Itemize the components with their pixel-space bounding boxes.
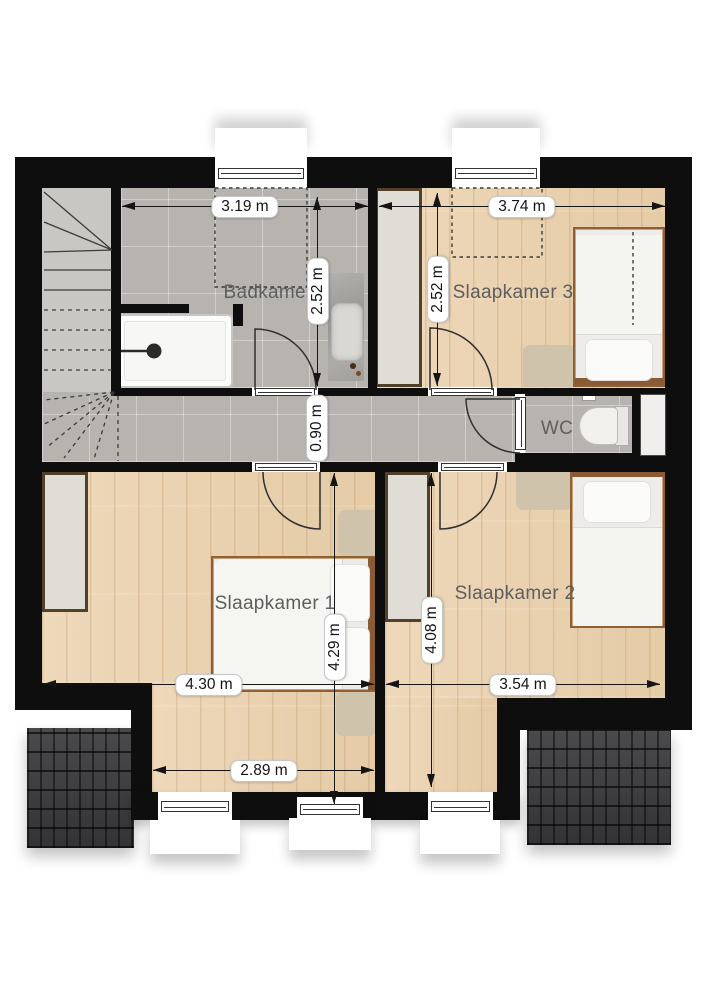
dimension-label: 3.19 m: [211, 196, 278, 218]
door-threshold: [515, 394, 525, 453]
door-threshold: [252, 462, 320, 472]
window: [428, 792, 493, 820]
dimension-label: 4.29 m: [324, 613, 346, 680]
cupboard: [640, 394, 666, 456]
door-threshold: [438, 462, 507, 472]
window-glazing: [431, 801, 490, 812]
stairs-floor: [42, 188, 115, 395]
window-sill: [289, 818, 371, 850]
wall-exterior-right-step-vertical: [497, 730, 520, 792]
arrowhead: [379, 202, 392, 210]
pillow: [583, 481, 651, 523]
roof-tiles: [527, 730, 671, 845]
arrowhead: [122, 202, 135, 210]
window-sill: [150, 820, 240, 854]
toilet-bowl: [579, 407, 618, 445]
wall-shower-top: [111, 304, 189, 313]
wall-exterior-left: [15, 157, 42, 698]
rug: [336, 692, 376, 736]
wall-exterior-left-step: [15, 683, 152, 710]
threshold-lines: [431, 388, 494, 396]
window-glazing: [455, 168, 537, 179]
wardrobe: [42, 472, 88, 612]
arrowhead: [433, 193, 441, 206]
faucet-dot: [350, 363, 356, 369]
dimension-label: 4.30 m: [175, 674, 242, 696]
duvet: [576, 235, 662, 335]
rug: [516, 472, 572, 510]
arrowhead: [313, 197, 321, 210]
roof-tiles: [27, 728, 134, 848]
window-glazing: [161, 801, 229, 812]
room-label-badkamer: Badkamer: [224, 282, 313, 304]
rug: [523, 345, 577, 387]
floorplan-canvas: 3.19 m 3.74 m 2.52 m 2.52 m 0.90 m 4.29 …: [0, 0, 707, 1000]
arrowhead: [153, 766, 166, 774]
wall-exterior-top: [15, 157, 692, 188]
window: [452, 157, 540, 188]
dimension-label: 2.89 m: [230, 760, 297, 782]
wall-slaapkamer1-slaapkamer2: [375, 472, 385, 792]
arrowhead: [313, 373, 321, 386]
window-sill: [420, 820, 500, 854]
wall-exterior-left-step-vertical: [131, 710, 152, 795]
window: [158, 792, 232, 820]
room-label-wc: WC: [541, 418, 573, 440]
window-sill: [215, 128, 307, 158]
threshold-lines: [441, 463, 504, 471]
arrowhead: [361, 680, 374, 688]
wardrobe: [375, 188, 422, 387]
arrowhead: [386, 680, 399, 688]
arrowhead: [355, 202, 368, 210]
room-label-slaapkamer-1: Slaapkamer 1: [215, 593, 336, 615]
arrowhead: [433, 373, 441, 386]
arrowhead: [427, 473, 435, 486]
window-sill: [452, 128, 540, 158]
room-label-slaapkamer-3: Slaapkamer 3: [453, 282, 574, 304]
arrowhead: [427, 774, 435, 787]
window: [215, 157, 307, 188]
room-label-slaapkamer-2: Slaapkamer 2: [455, 583, 576, 605]
faucet-dot: [356, 371, 361, 376]
door-threshold: [252, 387, 318, 396]
hallway-floor: [42, 392, 518, 462]
arrowhead: [647, 680, 660, 688]
threshold-lines: [255, 463, 317, 471]
double-bed: [211, 556, 377, 692]
wall-hallway-top: [111, 388, 692, 396]
wall-stairs-badkamer: [111, 188, 121, 396]
pillow: [585, 339, 653, 381]
arrowhead: [43, 680, 56, 688]
dimension-label: 2.52 m: [427, 255, 449, 322]
wall-exterior-bottom-right: [497, 698, 692, 730]
dimension-label: 4.08 m: [421, 596, 443, 663]
dimension-label: 3.54 m: [489, 674, 556, 696]
slaapkamer-2-floor-bay: [385, 698, 497, 795]
dimension-label: 3.74 m: [488, 196, 555, 218]
dimension-label: 2.52 m: [307, 257, 329, 324]
washbasin: [331, 303, 363, 361]
wall-wc-bottom: [515, 453, 642, 462]
wall-badkamer-slaapkamer3: [368, 157, 377, 396]
door-threshold: [428, 387, 497, 396]
single-bed: [573, 227, 665, 387]
wall-hallway-bottom: [42, 462, 692, 472]
single-bed: [570, 468, 665, 628]
duvet: [573, 527, 662, 626]
arrowhead: [361, 766, 374, 774]
window-glazing: [300, 804, 360, 815]
arrowhead: [652, 202, 665, 210]
arrowhead: [330, 473, 338, 486]
threshold-lines: [515, 397, 526, 450]
shower-tray-inner: [124, 321, 226, 381]
shower-tray: [117, 314, 233, 388]
arrowhead: [330, 791, 338, 804]
dimension-label: 0.90 m: [306, 394, 328, 461]
window-glazing: [218, 168, 304, 179]
threshold-lines: [255, 388, 315, 396]
wall-shower-stub: [233, 304, 243, 326]
